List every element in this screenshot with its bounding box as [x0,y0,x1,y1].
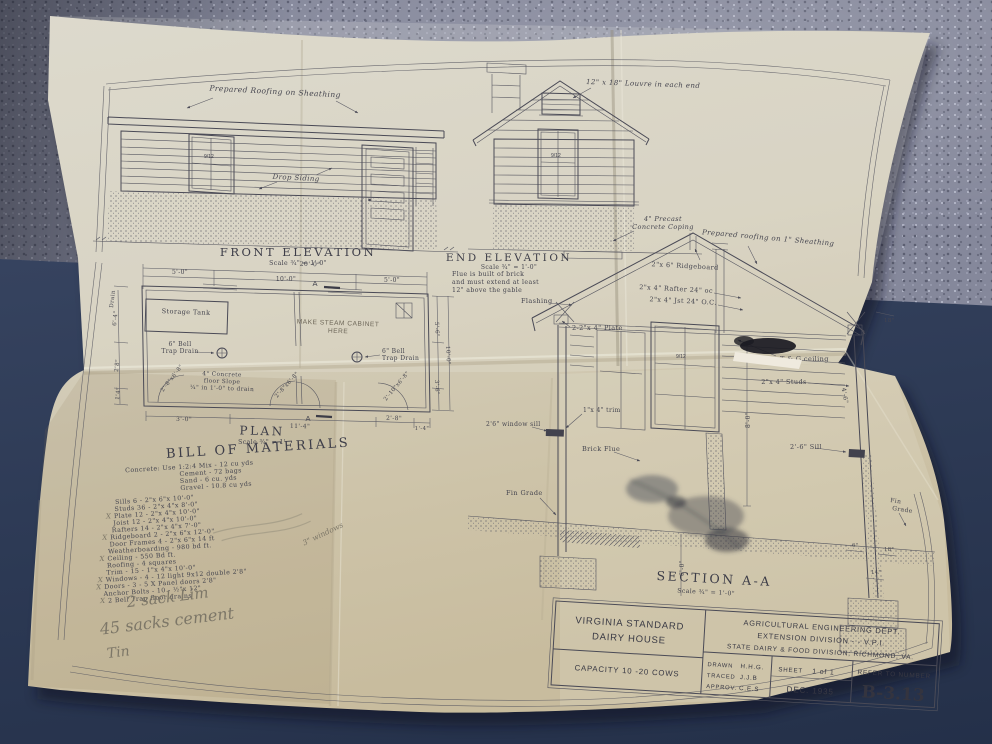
approved-value: C.E.S [739,685,760,693]
section-marker-top: A [312,279,317,288]
dim-right-a: 5'-6" [433,322,440,337]
trim-note: 1"x 4" trim [583,407,621,414]
dim-footing-h: 14" [871,570,881,576]
flashing-label: Flashing [521,297,553,305]
plate-note: 2-2"x 4" Plate [572,324,623,332]
pencil-note-tin: Tin [106,643,131,662]
drain-left-label-2: Trap Drain [161,348,198,355]
plan-caption: PLAN [239,423,285,438]
section-marker-bottom: A [305,414,310,423]
flue-note-2: and must extend at least [452,279,539,286]
dim-top-mid: 10'-0" [276,276,296,283]
end-elevation-caption: END ELEVATION [446,252,572,264]
blueprint-sheet-art: 9/12 Prepared Roofing on Sheathing Drop … [0,0,992,744]
steam-cabinet-note-2: HERE [328,328,349,336]
traced-value: J.J.B [740,674,758,682]
dim-right-overall: 10'-0" [444,346,451,365]
sheet-label: SHEET [778,666,803,674]
dim-wall-height: 8'-0" [745,412,752,428]
front-foundation [106,191,438,250]
dim-right-b: 3'-6" [433,380,440,395]
drawing-number: B-3.13 [861,682,925,706]
dim-top-left: 5'-0" [172,269,188,276]
brick-flue-label: Brick Flue [582,445,620,453]
dim-bottom-b: 11'-4" [290,423,310,431]
floor-note-2: floor Slope [204,378,241,385]
front-window-lights: 9/12 [204,154,214,160]
fin-grade-left: Fin Grade [506,489,543,497]
drain-right-label-2: Trap Drain [382,355,419,362]
drain-left-label-1: 6" Bell [168,341,191,348]
sill-note: 2'-6" Sill [790,443,822,451]
front-elevation-caption: FRONT ELEVATION [220,245,376,259]
stud-note: 2"x 4" Studs [761,378,807,386]
photo-of-blueprint: 9/12 Prepared Roofing on Sheathing Drop … [0,0,992,744]
end-coping-note-1: 4" Precast [643,215,682,223]
dim-footing-stem: 6" [852,543,859,549]
end-coping-note-2: Concrete Coping [632,223,694,231]
plan-drain-left [217,348,227,358]
flue-note-3: 12" above the gable [452,287,522,294]
dim-bottom-d: 1'-4" [415,426,430,432]
dim-bottom-a: 3'-0" [176,416,192,423]
sheet-value: 1 of 1 [812,668,835,676]
dim-overall: 20'-0" [300,261,321,269]
dim-eave: 18" [884,318,895,324]
end-elevation-scale: Scale ¾" = 1'-0" [481,264,537,271]
storage-tank-label: Storage Tank [162,307,211,317]
drain-right-label-1: 6" Bell [382,348,405,355]
end-window-lights: 9/12 [551,153,561,159]
plan-drain-right [352,352,362,362]
left-footing [540,556,596,590]
section-window-lights: 9/12 [676,354,686,360]
dim-bottom-c: 2'-8" [386,415,402,422]
dim-top-right: 5'-0" [384,277,400,284]
dim-footing-w: 18" [884,547,894,553]
drawn-value: H.H.G. [740,663,764,671]
flue-note-1: Flue is built of brick [452,271,524,278]
end-foundation [493,205,635,251]
